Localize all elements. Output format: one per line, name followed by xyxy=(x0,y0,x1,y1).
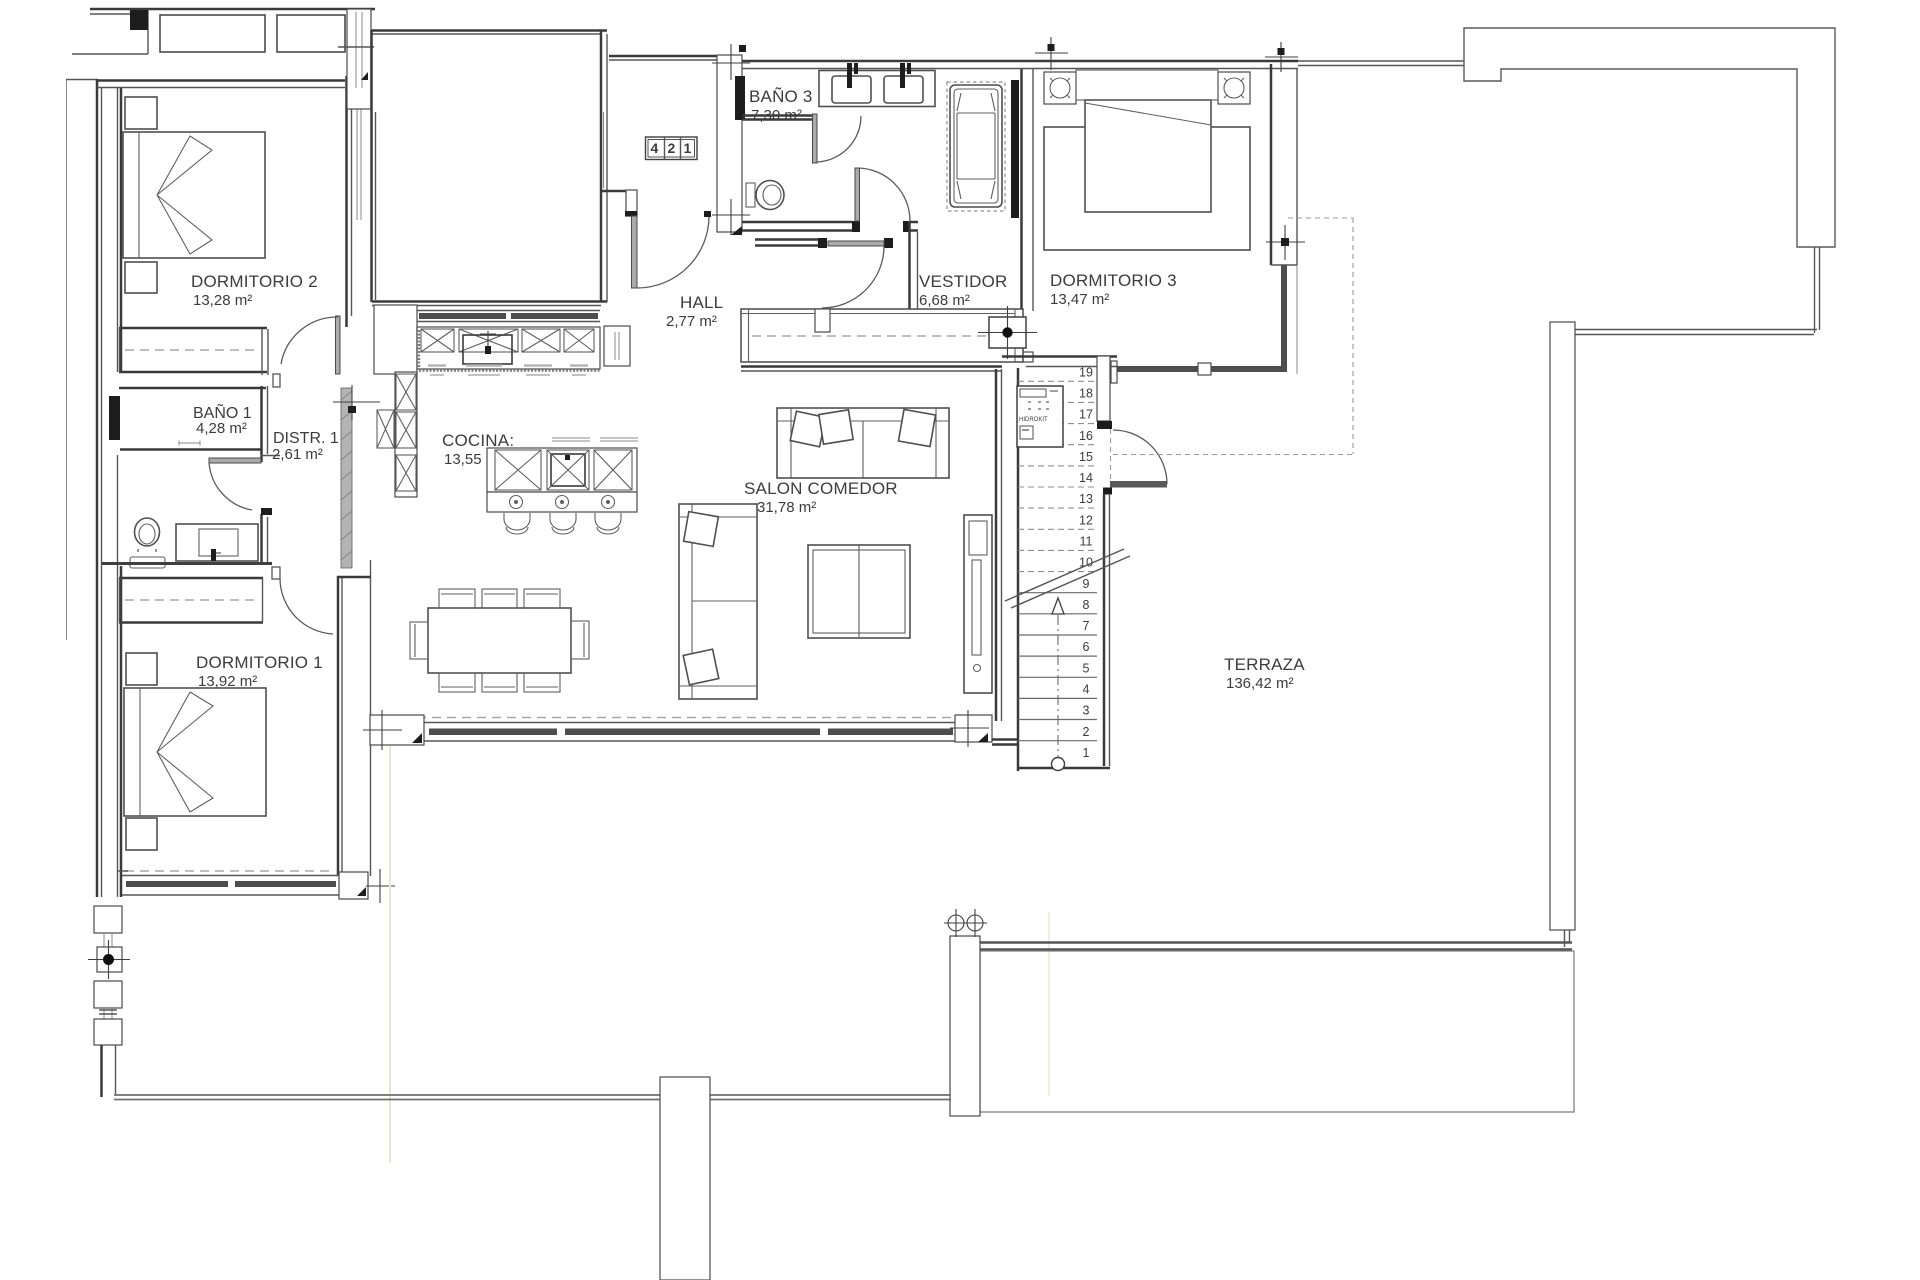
svg-text:19: 19 xyxy=(1079,365,1093,379)
svg-text:1: 1 xyxy=(1083,746,1090,760)
svg-text:2,77 m²: 2,77 m² xyxy=(666,313,717,330)
svg-text:136,42 m²: 136,42 m² xyxy=(1226,675,1294,692)
svg-text:BAÑO 3: BAÑO 3 xyxy=(749,87,813,106)
svg-text:6,68 m²: 6,68 m² xyxy=(919,292,970,309)
svg-text:2: 2 xyxy=(1083,725,1090,739)
svg-text:HIDROKIT: HIDROKIT xyxy=(1019,417,1048,423)
svg-text:BAÑO 1: BAÑO 1 xyxy=(193,402,252,422)
svg-text:4: 4 xyxy=(1083,683,1090,697)
svg-text:11: 11 xyxy=(1080,535,1093,549)
svg-text:DORMITORIO 1: DORMITORIO 1 xyxy=(196,653,323,672)
svg-text:DORMITORIO 2: DORMITORIO 2 xyxy=(191,272,318,291)
svg-text:13,55: 13,55 xyxy=(444,451,482,468)
svg-text:13: 13 xyxy=(1079,492,1093,506)
svg-text:12: 12 xyxy=(1079,513,1093,527)
svg-text:9: 9 xyxy=(1083,577,1090,591)
svg-text:14: 14 xyxy=(1079,471,1093,485)
svg-text:2: 2 xyxy=(668,140,676,156)
svg-text:6: 6 xyxy=(1083,640,1090,654)
svg-text:TERRAZA: TERRAZA xyxy=(1224,655,1305,674)
svg-text:7: 7 xyxy=(1083,619,1090,633)
svg-text:5: 5 xyxy=(1083,661,1090,675)
svg-text:VESTIDOR: VESTIDOR xyxy=(919,272,1008,291)
svg-text:4: 4 xyxy=(651,140,659,156)
svg-text:3: 3 xyxy=(1083,704,1090,718)
svg-text:16: 16 xyxy=(1079,429,1093,443)
svg-text:1: 1 xyxy=(684,140,692,156)
svg-text:13,47 m²: 13,47 m² xyxy=(1050,291,1109,308)
svg-text:13,28 m²: 13,28 m² xyxy=(193,292,252,309)
svg-text:31,78 m²: 31,78 m² xyxy=(757,499,816,516)
svg-text:4,28 m²: 4,28 m² xyxy=(196,420,247,437)
svg-text:HALL: HALL xyxy=(680,293,723,312)
svg-text:COCINA:: COCINA: xyxy=(442,431,514,450)
svg-text:DISTR. 1: DISTR. 1 xyxy=(273,430,339,447)
svg-text:8: 8 xyxy=(1083,598,1090,612)
svg-text:SALON COMEDOR: SALON COMEDOR xyxy=(744,479,898,498)
svg-text:15: 15 xyxy=(1079,450,1093,464)
svg-text:18: 18 xyxy=(1079,387,1093,401)
svg-text:2,61 m²: 2,61 m² xyxy=(272,446,323,463)
svg-text:DORMITORIO 3: DORMITORIO 3 xyxy=(1050,271,1177,290)
svg-text:17: 17 xyxy=(1079,408,1093,422)
